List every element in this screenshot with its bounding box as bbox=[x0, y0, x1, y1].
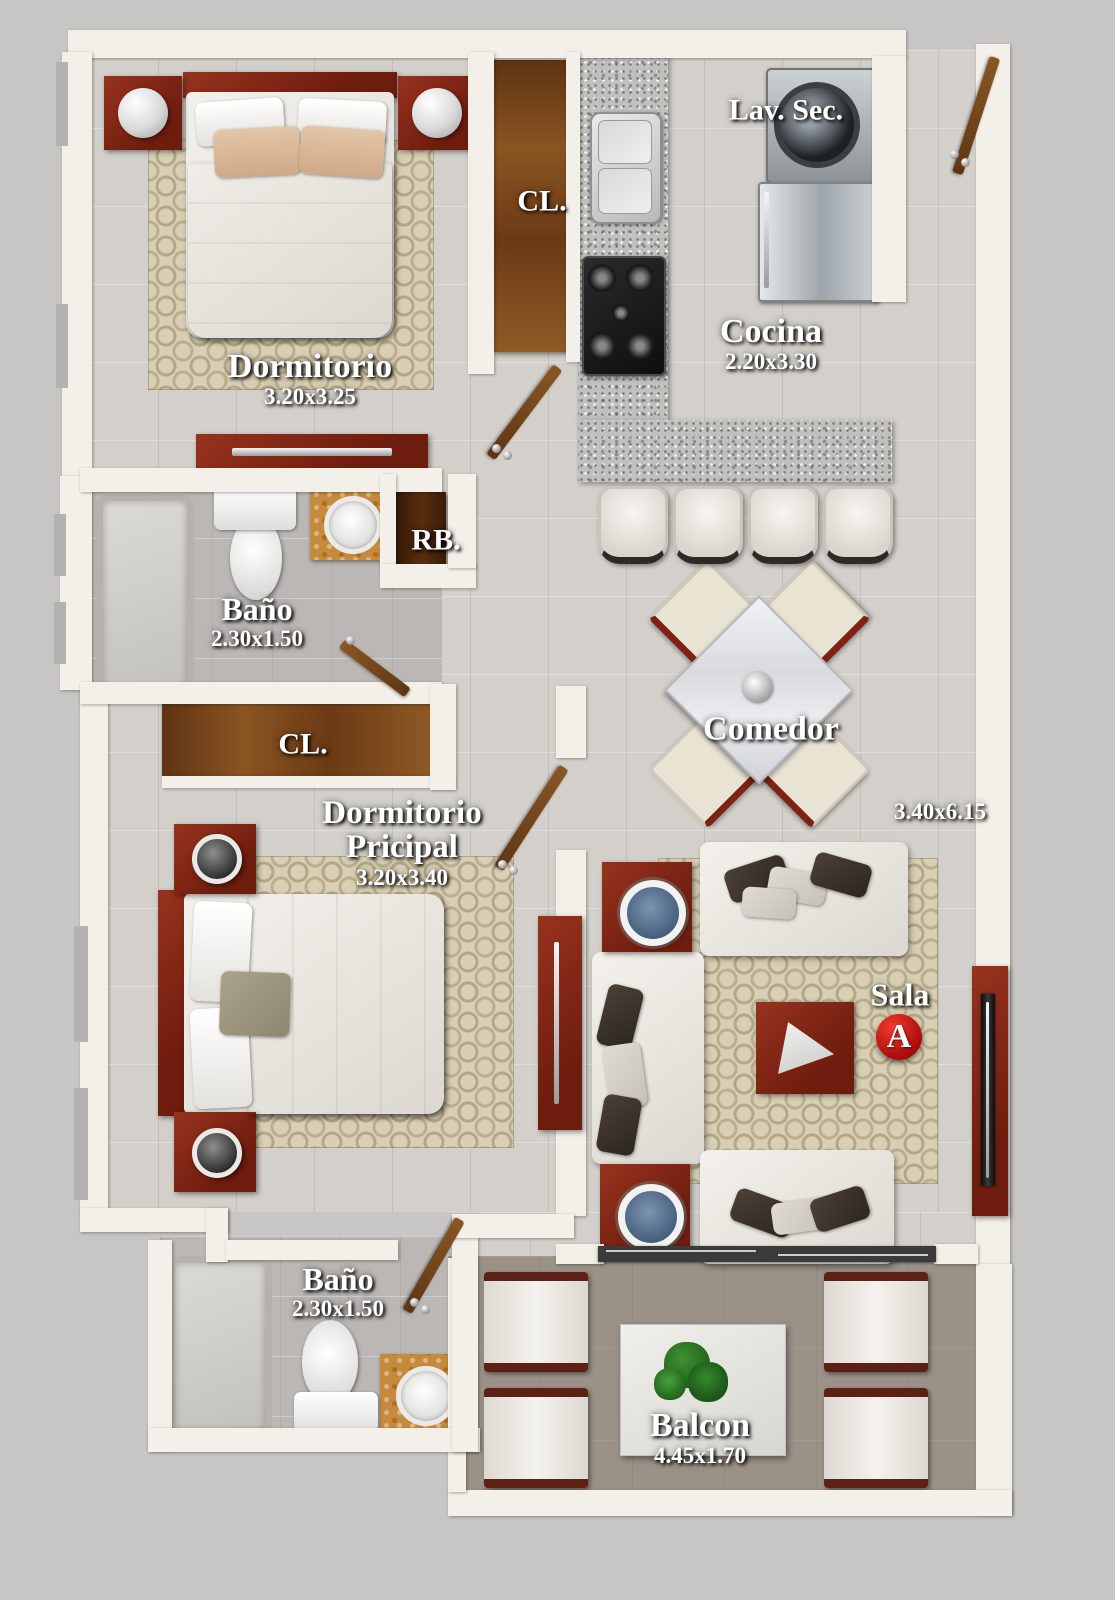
kitchen-sink-basin-top bbox=[598, 120, 652, 164]
bed1-pillow-beige-left bbox=[213, 126, 301, 178]
side-table-top-bowl bbox=[620, 880, 686, 946]
lamp-bed1-right bbox=[412, 88, 462, 138]
label-comedor-name: Comedor bbox=[703, 710, 839, 747]
label-sala-dims-text: 3.40x6.15 bbox=[894, 799, 986, 824]
window-master-lower bbox=[74, 1088, 88, 1200]
label-closet-top-name: CL. bbox=[517, 184, 566, 217]
wall-bedroom1-closet bbox=[468, 52, 494, 374]
label-cocina-dims: 2.20x3.30 bbox=[720, 350, 822, 374]
master-dresser bbox=[538, 916, 582, 1130]
bar-stool-1 bbox=[598, 486, 668, 564]
wall-closet-principal-right bbox=[430, 684, 456, 790]
lamp-bed1-left bbox=[118, 88, 168, 138]
unit-badge-letter: A bbox=[887, 1018, 912, 1056]
bed1-duvet bbox=[188, 162, 392, 338]
label-sala: Sala bbox=[871, 978, 930, 1011]
side-table-bottom-bowl bbox=[618, 1184, 684, 1250]
bedroom1-door-knob-2 bbox=[503, 451, 512, 460]
lamp-bed2-top bbox=[192, 834, 242, 884]
stove-burner-4 bbox=[626, 332, 654, 360]
label-dormitorio: Dormitorio 3.20x3.25 bbox=[228, 349, 392, 409]
balcony-chair-bottom-left bbox=[484, 1388, 588, 1488]
stove-burner-2 bbox=[626, 264, 654, 292]
balcony-chair-top-right bbox=[824, 1272, 928, 1372]
label-dormitorio-dims: 3.20x3.25 bbox=[228, 385, 392, 409]
label-lavanderia-name: Lav. Sec. bbox=[729, 93, 843, 126]
wall-closet-top-right bbox=[566, 52, 580, 362]
wall-bathroom-bottom-top bbox=[226, 1240, 398, 1260]
stove-burner-1 bbox=[588, 264, 616, 292]
label-dormitorio-principal: Dormitorio Pricipal 3.20x3.40 bbox=[322, 796, 481, 890]
window-bathroom-top-2 bbox=[54, 602, 66, 664]
label-bano-superior-dims: 2.30x1.50 bbox=[211, 627, 303, 651]
label-closet-top: CL. bbox=[517, 185, 566, 216]
stove-burner-3 bbox=[588, 332, 616, 360]
window-bedroom1-lower bbox=[56, 304, 68, 388]
label-bano-inferior-name: Baño bbox=[302, 1261, 373, 1297]
bar-stool-4 bbox=[823, 486, 893, 564]
wall-slider-right-jamb bbox=[934, 1244, 978, 1264]
label-lavanderia: Lav. Sec. bbox=[729, 94, 843, 125]
wall-bathroom-bottom-left bbox=[148, 1240, 172, 1450]
wall-master-step bbox=[206, 1208, 228, 1262]
master-bedroom-door-knob bbox=[498, 860, 507, 869]
label-sala-name: Sala bbox=[871, 976, 930, 1012]
unit-badge: A bbox=[876, 1014, 922, 1060]
label-bano-superior-name: Baño bbox=[221, 591, 292, 627]
bathroom-bottom-shower bbox=[168, 1256, 272, 1438]
bathroom-top-sink bbox=[324, 496, 382, 554]
wall-bathroom-bottom-right bbox=[452, 1214, 478, 1452]
label-closet-principal-name: CL. bbox=[278, 727, 327, 760]
bathroom-bottom-toilet-tank bbox=[294, 1392, 378, 1432]
label-bano-inferior-dims: 2.30x1.50 bbox=[292, 1297, 384, 1321]
balcony-sliding-door-glass-2 bbox=[778, 1254, 928, 1256]
dining-centerpiece bbox=[742, 672, 772, 702]
balcony-plant-leaf-1 bbox=[688, 1362, 728, 1402]
label-bano-superior: Baño 2.30x1.50 bbox=[211, 593, 303, 651]
label-cocina: Cocina 2.20x3.30 bbox=[720, 314, 822, 374]
refrigerator bbox=[758, 182, 880, 302]
wall-slider-left-jamb bbox=[556, 1244, 604, 1264]
balcony-plant-leaf-2 bbox=[654, 1368, 686, 1400]
bathroom-top-toilet-tank bbox=[214, 486, 296, 530]
bed1-pillow-beige-right bbox=[298, 125, 385, 179]
bar-stool-2 bbox=[673, 486, 743, 564]
entrance-door-knob-2 bbox=[961, 158, 970, 167]
bedroom1-dresser-mirror bbox=[232, 448, 392, 456]
label-closet-principal: CL. bbox=[278, 728, 327, 759]
label-balcon-dims: 4.45x1.70 bbox=[650, 1444, 750, 1468]
label-cocina-name: Cocina bbox=[720, 313, 822, 350]
wall-right-balcony bbox=[976, 1264, 1012, 1514]
tv-screen-frame bbox=[986, 1002, 989, 1178]
bed2-headboard bbox=[158, 890, 186, 1116]
wall-balcony-top-left bbox=[452, 1214, 574, 1238]
refrigerator-handle bbox=[764, 192, 769, 288]
entrance-door-knob bbox=[950, 150, 959, 159]
label-dormitorio-principal-dims: 3.20x3.40 bbox=[322, 866, 481, 890]
sofa-top-pillow-light-2 bbox=[741, 886, 797, 920]
label-balcon-name: Balcon bbox=[650, 1407, 750, 1444]
floor-plan-scene: Dormitorio 3.20x3.25 CL. Lav. Sec. Cocin… bbox=[0, 0, 1115, 1600]
label-dormitorio-principal-line2: Pricipal bbox=[322, 831, 481, 865]
balcony-sliding-door-glass-1 bbox=[606, 1250, 756, 1252]
label-rb-name: RB. bbox=[411, 523, 460, 556]
bathroom-top-shower bbox=[96, 494, 194, 698]
window-bathroom-top-1 bbox=[54, 514, 66, 576]
kitchen-sink-basin-bottom bbox=[598, 168, 652, 214]
balcony-chair-bottom-right bbox=[824, 1388, 928, 1488]
stove-center-knob bbox=[612, 304, 630, 322]
kitchen-bar-counter bbox=[578, 420, 892, 482]
wall-balcony-bottom bbox=[448, 1490, 1012, 1516]
bathroom-bottom-door-knob bbox=[410, 1298, 419, 1307]
closet-principal-front bbox=[162, 776, 454, 788]
window-master-upper bbox=[74, 926, 88, 1042]
wall-rb-left bbox=[380, 474, 396, 570]
wall-bathroom-bottom-bottom bbox=[148, 1428, 480, 1452]
bathroom-top-door-knob bbox=[346, 636, 355, 645]
bar-stool-3 bbox=[748, 486, 818, 564]
balcony-chair-top-left bbox=[484, 1272, 588, 1372]
bedroom1-door-knob bbox=[492, 444, 501, 453]
bed2-accent-pillow bbox=[219, 971, 291, 1037]
master-bedroom-door-knob-2 bbox=[509, 866, 518, 875]
label-bano-inferior: Baño 2.30x1.50 bbox=[292, 1263, 384, 1321]
label-rb: RB. bbox=[411, 524, 460, 555]
label-sala-dims: 3.40x6.15 bbox=[894, 800, 986, 824]
wall-master-sala-top bbox=[556, 686, 586, 758]
bathroom-bottom-sink bbox=[396, 1366, 456, 1426]
window-bedroom1-upper bbox=[56, 62, 68, 146]
label-dormitorio-name: Dormitorio bbox=[228, 348, 392, 385]
lamp-bed2-bottom bbox=[192, 1128, 242, 1178]
wall-kitchen-right bbox=[872, 56, 906, 302]
bathroom-bottom-door-knob-2 bbox=[421, 1305, 430, 1314]
label-dormitorio-principal-line1: Dormitorio bbox=[322, 796, 481, 830]
label-comedor: Comedor bbox=[703, 711, 839, 746]
master-dresser-handle bbox=[554, 942, 559, 1104]
label-balcon: Balcon 4.45x1.70 bbox=[650, 1408, 750, 1468]
